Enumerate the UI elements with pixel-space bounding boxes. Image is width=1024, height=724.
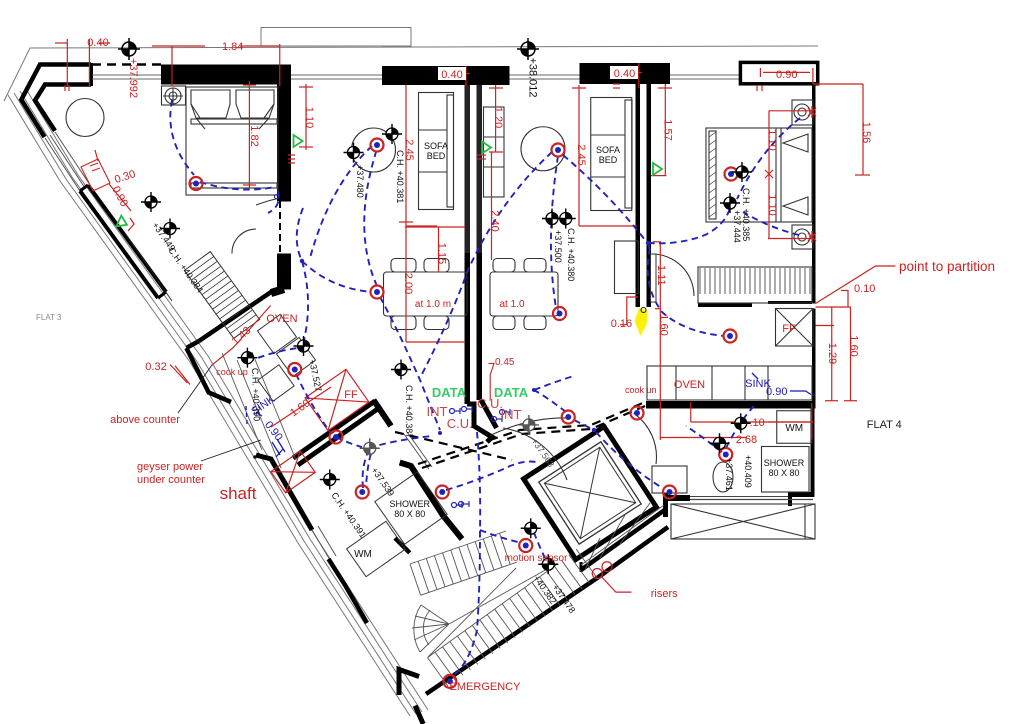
svg-text:0.40: 0.40	[87, 37, 108, 49]
svg-text:2.40: 2.40	[489, 210, 501, 231]
svg-text:INT: INT	[427, 404, 448, 419]
svg-text:1.29: 1.29	[826, 343, 838, 364]
svg-text:80 X 80: 80 X 80	[394, 509, 425, 519]
svg-text:C.H. +40.390: C.H. +40.390	[250, 368, 262, 422]
svg-text:BED: BED	[427, 151, 446, 161]
svg-text:2.00: 2.00	[402, 273, 414, 294]
svg-text:OVEN: OVEN	[674, 379, 705, 391]
svg-text:DATA: DATA	[432, 385, 467, 400]
svg-text:80 X 80: 80 X 80	[768, 468, 799, 478]
svg-text:at 1.0 m: at 1.0 m	[415, 299, 451, 310]
svg-text:motion sensor: motion sensor	[505, 553, 568, 564]
svg-text:FF: FF	[344, 389, 358, 401]
svg-text:FF: FF	[782, 323, 796, 335]
svg-text:+37.500: +37.500	[553, 230, 563, 263]
svg-text:2.45: 2.45	[575, 144, 587, 165]
svg-text:SOFA: SOFA	[596, 145, 620, 155]
svg-text:1.57: 1.57	[662, 119, 674, 140]
svg-text:+37.461: +37.461	[724, 458, 734, 491]
svg-text:+37.444: +37.444	[732, 210, 742, 243]
svg-text:1.20: 1.20	[492, 107, 504, 128]
svg-text:geyser power: geyser power	[137, 461, 203, 473]
svg-text:C.H. +40.387: C.H. +40.387	[404, 385, 414, 438]
svg-text:WM: WM	[785, 423, 803, 434]
svg-text:.10: .10	[750, 417, 765, 429]
svg-text:1.60: 1.60	[848, 335, 860, 356]
svg-text:SOFA: SOFA	[424, 141, 448, 151]
svg-text:1.10: 1.10	[766, 129, 778, 150]
svg-text:FLAT 4: FLAT 4	[867, 419, 902, 431]
svg-text:cook up: cook up	[216, 367, 248, 377]
svg-text:1.84: 1.84	[222, 41, 243, 53]
svg-text:point to partition: point to partition	[899, 259, 995, 274]
svg-text:+37.992: +37.992	[127, 58, 139, 98]
svg-text:FLAT 3: FLAT 3	[36, 313, 62, 322]
svg-text:1.60: 1.60	[657, 314, 669, 335]
svg-text:SHOWER: SHOWER	[764, 458, 805, 468]
svg-text:C.U.: C.U.	[477, 396, 503, 411]
svg-text:+37.480: +37.480	[355, 165, 365, 198]
svg-text:INT: INT	[501, 407, 522, 422]
svg-text:C.H. +40.380: C.H. +40.380	[566, 228, 576, 281]
svg-text:cook un: cook un	[625, 385, 657, 395]
svg-text:1.15: 1.15	[436, 243, 448, 264]
svg-text:shaft: shaft	[220, 484, 257, 503]
svg-text:0.32: 0.32	[145, 361, 166, 373]
svg-text:1.11: 1.11	[655, 265, 667, 286]
svg-text:1.82: 1.82	[248, 125, 260, 146]
svg-text:under counter: under counter	[137, 474, 205, 486]
svg-text:1.10: 1.10	[766, 194, 778, 215]
svg-text:EMERGENCY: EMERGENCY	[450, 681, 522, 693]
svg-text:OVEN: OVEN	[266, 313, 297, 325]
svg-text:2.68: 2.68	[736, 434, 757, 446]
svg-text:SHOWER: SHOWER	[390, 499, 431, 509]
svg-text:0.45: 0.45	[495, 357, 515, 368]
svg-text:C.H. +40.381: C.H. +40.381	[395, 150, 405, 203]
svg-text:+40.409: +40.409	[743, 455, 753, 488]
svg-text:0.90: 0.90	[776, 69, 797, 81]
svg-text:0.90: 0.90	[766, 386, 787, 398]
svg-text:BED: BED	[599, 155, 618, 165]
svg-text:above counter: above counter	[110, 414, 180, 426]
svg-text:0.40: 0.40	[441, 69, 462, 81]
svg-text:0.10: 0.10	[854, 283, 875, 295]
svg-text:WM: WM	[354, 549, 372, 560]
svg-text:at 1.0: at 1.0	[499, 299, 524, 310]
svg-text:1.10: 1.10	[303, 107, 315, 128]
svg-text:C.U.: C.U.	[447, 416, 473, 431]
svg-text:0.16: 0.16	[611, 318, 632, 330]
svg-text:+38.012: +38.012	[527, 57, 539, 97]
svg-text:1.56: 1.56	[860, 122, 872, 143]
svg-text:risers: risers	[651, 588, 678, 600]
svg-text:0.40: 0.40	[614, 68, 635, 80]
